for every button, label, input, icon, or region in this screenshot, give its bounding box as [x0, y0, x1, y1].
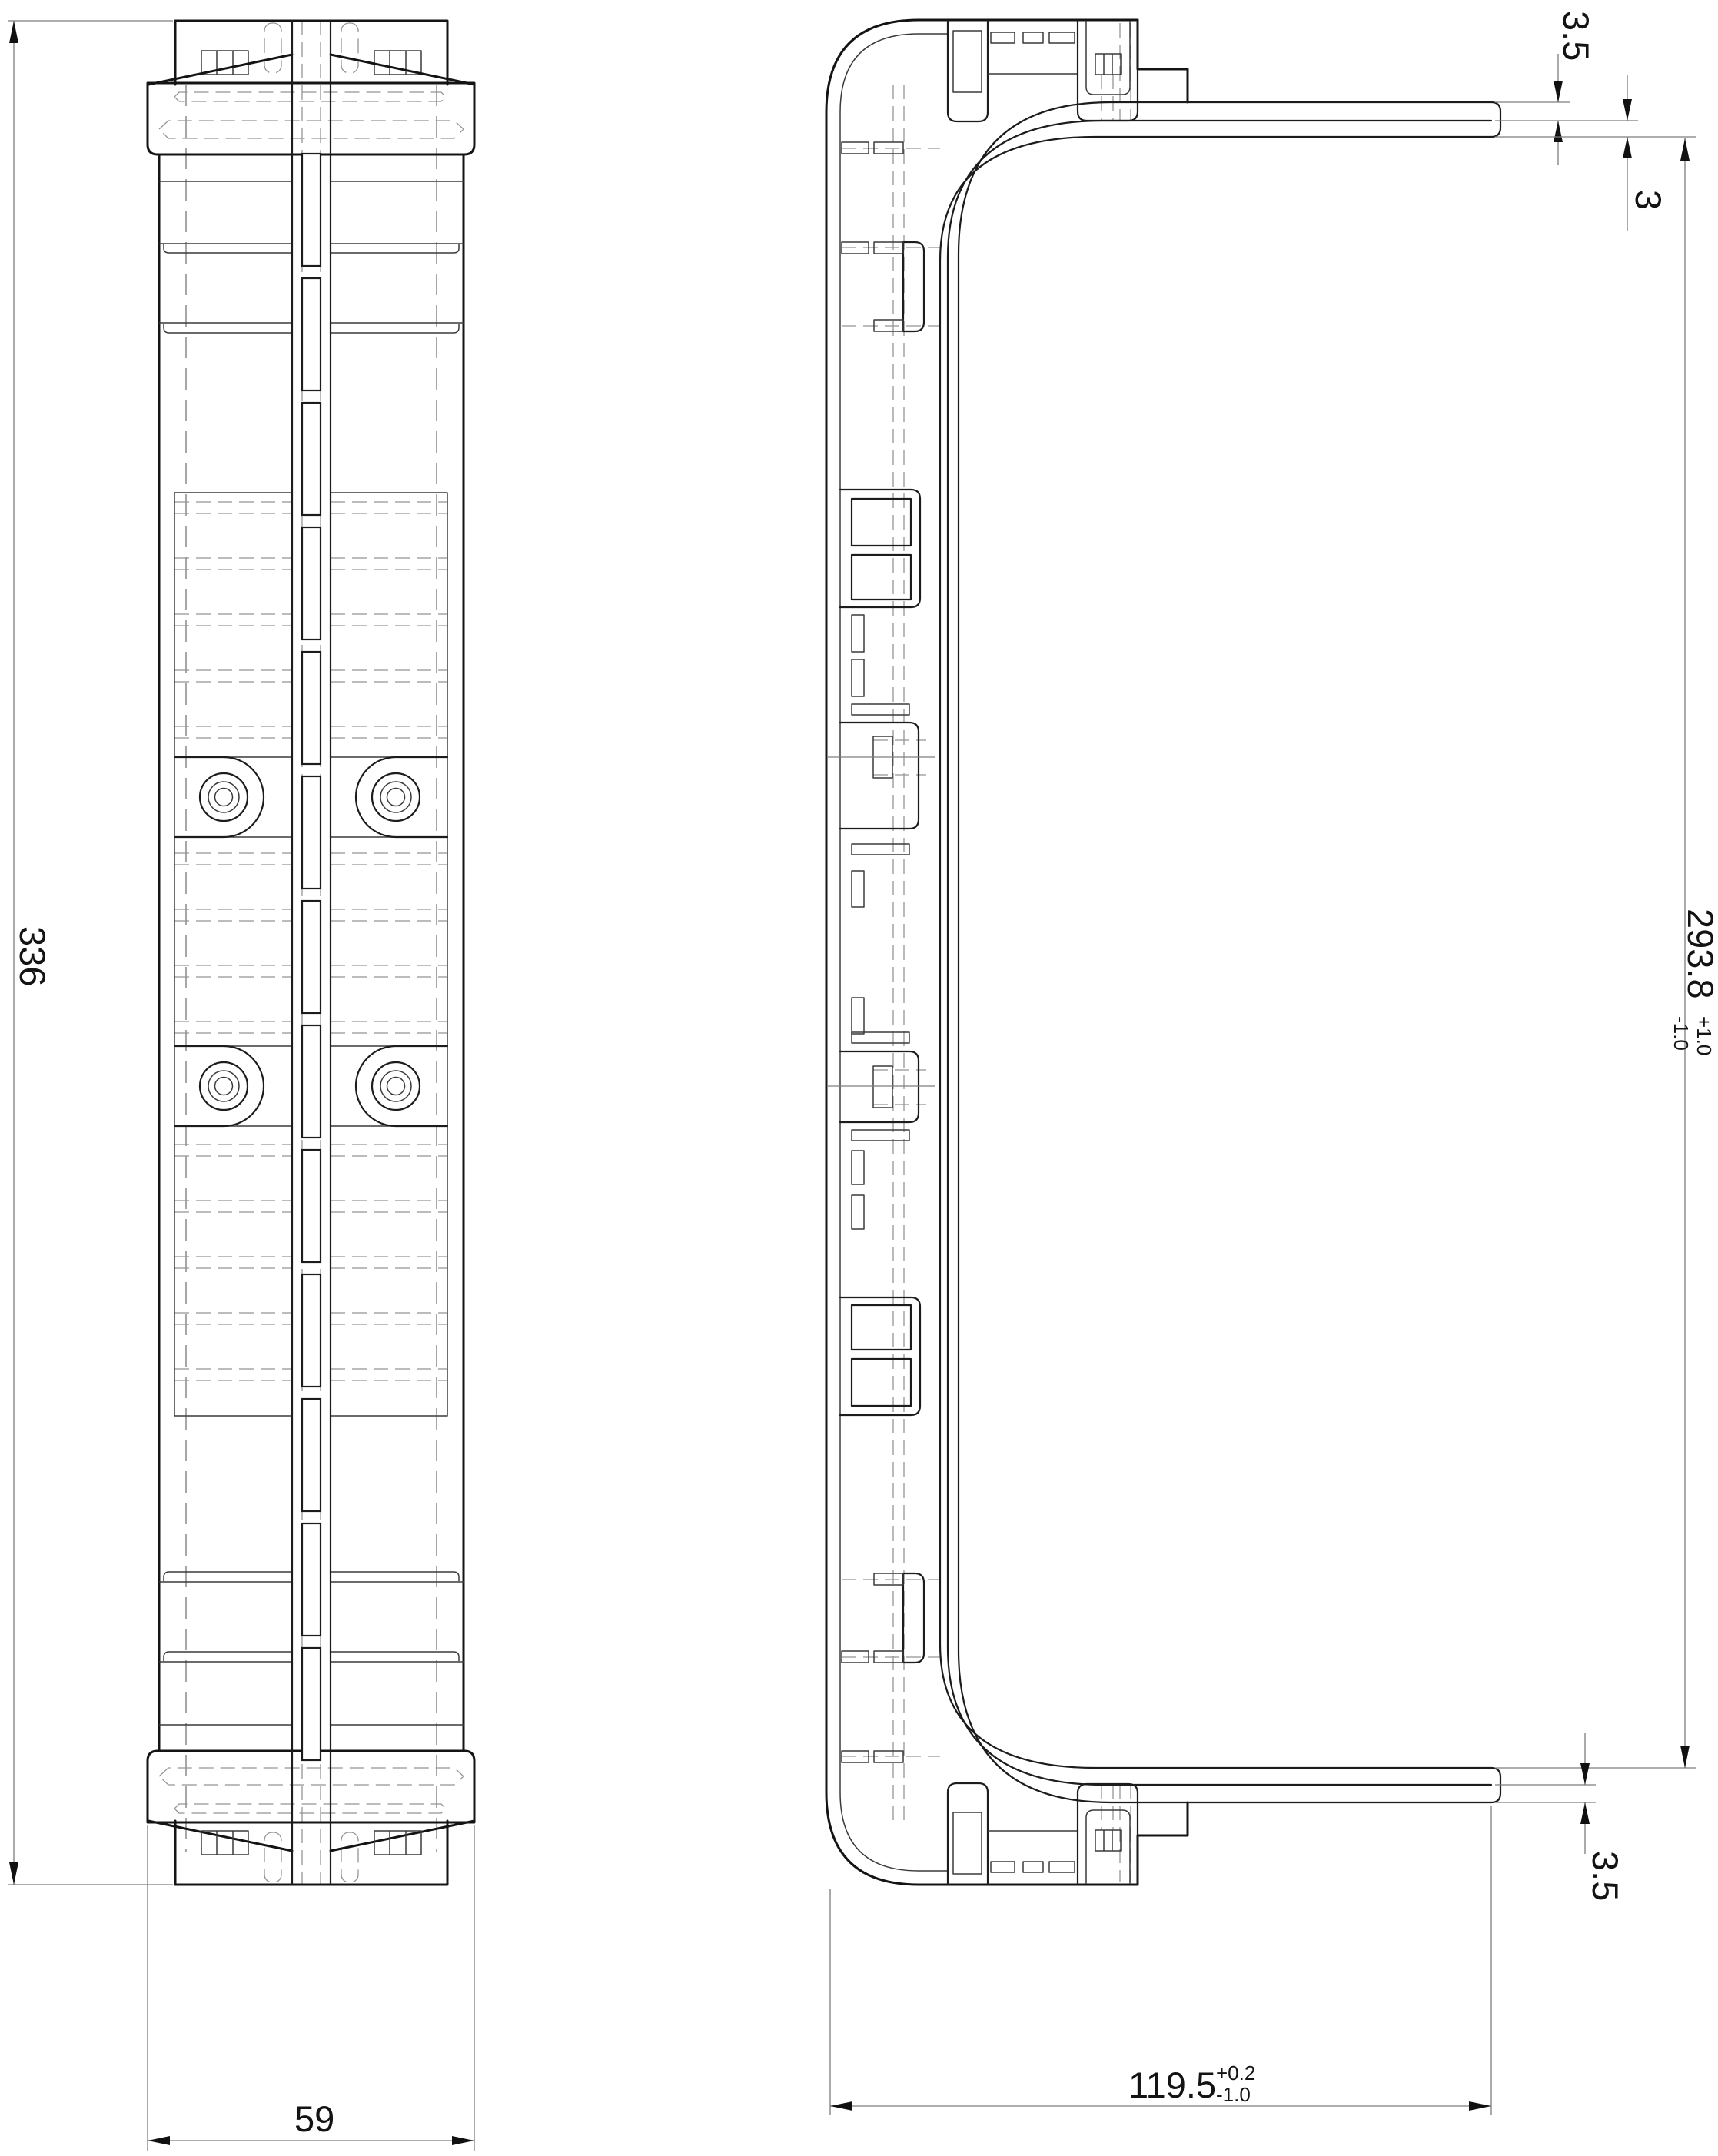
arrowhead — [9, 21, 18, 43]
front-top-cap-clips — [201, 51, 421, 75]
front-bottom-cap-clips — [201, 1831, 421, 1855]
dim-side-overall-depth: 119.5 +0.2 -1.0 — [830, 1806, 1491, 2115]
arrowhead — [148, 2136, 170, 2145]
boss-circle — [200, 773, 248, 821]
front-top-flange — [148, 83, 474, 154]
dim-293.8-label: 293.8 — [1680, 909, 1718, 999]
side-top-flange-details — [948, 21, 1138, 121]
dim-119.5-label: 119.5 — [1128, 2065, 1216, 2105]
dim-lip-top-thickness: 3.5 — [1495, 11, 1638, 165]
front-center-slots — [302, 154, 321, 1760]
dim-inner-height: 293.8 +1.0 -1.0 — [1495, 138, 1718, 1768]
side-hidden-lines — [842, 23, 1131, 1882]
side-lip-layers — [940, 102, 1500, 1802]
front-bottom-flange — [148, 1751, 474, 1822]
arrowhead — [830, 2101, 852, 2111]
boss-circle — [200, 1062, 248, 1110]
dim-59-label: 59 — [294, 2098, 334, 2139]
arrowhead — [1580, 1763, 1590, 1785]
arrowhead — [1554, 81, 1563, 102]
dim-3.5-bottom-label: 3.5 — [1585, 1851, 1626, 1901]
arrowhead — [1623, 137, 1632, 158]
side-bottom-flange-details — [948, 1783, 1138, 1884]
dim-119.5-tol-minus: -1.0 — [1216, 2083, 1251, 2106]
boss-circle — [372, 773, 420, 821]
side-section-view — [826, 20, 1500, 1885]
side-wall-features — [828, 142, 935, 1762]
boss-circle — [372, 1062, 420, 1110]
dim-3.5-top-label: 3.5 — [1556, 11, 1597, 61]
dim-119.5-tol-plus: +0.2 — [1216, 2061, 1255, 2085]
front-top-chamfer-lines — [148, 55, 474, 85]
dim-front-overall-width: 59 — [148, 1825, 474, 2151]
front-view — [148, 21, 474, 1885]
cad-technical-drawing: 336 59 3.5 3 — [0, 0, 1718, 2156]
arrowhead — [9, 1862, 18, 1885]
dim-293.8-tol-plus: +1.0 — [1693, 1016, 1716, 1055]
lip-end-caps — [1491, 102, 1500, 1802]
arrowhead — [1623, 99, 1632, 121]
front-bottom-chamfer-lines — [148, 1821, 474, 1851]
dimensions: 336 59 3.5 3 — [8, 11, 1718, 2151]
arrowhead — [1680, 1746, 1690, 1768]
side-outer-profile — [826, 20, 1138, 1885]
side-wall-inner-face — [840, 34, 948, 1871]
arrowhead — [452, 2136, 474, 2145]
dim-336-label: 336 — [12, 926, 53, 986]
arrowhead — [1469, 2101, 1491, 2111]
side-flange-steps — [1138, 20, 1188, 1885]
arrowhead — [1680, 138, 1690, 161]
arrowhead — [1580, 1802, 1590, 1824]
dim-lip-bottom-thickness: 3.5 — [1495, 1733, 1626, 1901]
dim-3-label: 3 — [1628, 190, 1669, 210]
dim-293.8-tol-minus: -1.0 — [1670, 1016, 1693, 1051]
latch-1 — [840, 723, 919, 829]
arrowhead — [1554, 121, 1563, 142]
dim-lip-step: 3 — [1495, 75, 1696, 231]
dim-front-overall-height: 336 — [8, 21, 173, 1885]
latch-2 — [840, 1051, 919, 1122]
